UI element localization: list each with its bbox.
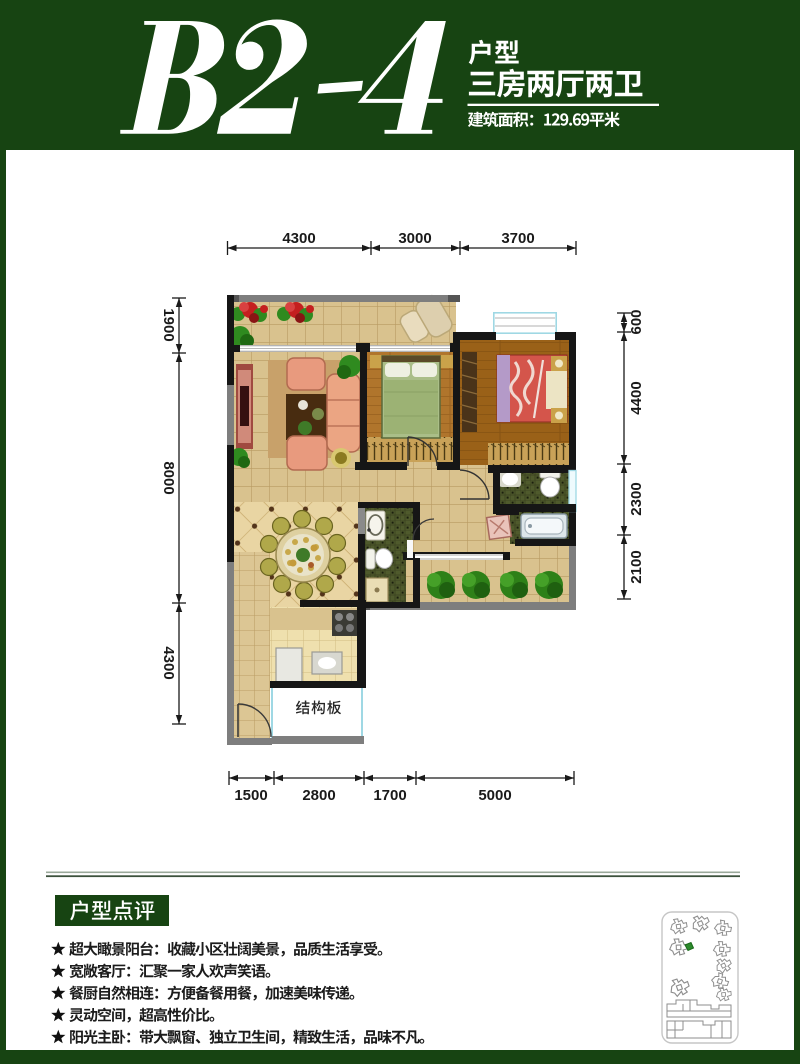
svg-text:3000: 3000	[398, 230, 431, 247]
svg-text:1900: 1900	[160, 308, 177, 341]
svg-text:4300: 4300	[160, 646, 177, 679]
svg-text:600: 600	[628, 309, 645, 334]
svg-text:3700: 3700	[501, 230, 534, 247]
svg-text:8000: 8000	[160, 461, 177, 494]
svg-text:2800: 2800	[302, 787, 335, 804]
svg-text:2300: 2300	[628, 482, 645, 515]
svg-text:1500: 1500	[234, 787, 267, 804]
svg-text:4400: 4400	[628, 381, 645, 414]
svg-text:2100: 2100	[628, 550, 645, 583]
svg-text:4300: 4300	[282, 230, 315, 247]
svg-text:5000: 5000	[478, 787, 511, 804]
svg-text:1700: 1700	[373, 787, 406, 804]
